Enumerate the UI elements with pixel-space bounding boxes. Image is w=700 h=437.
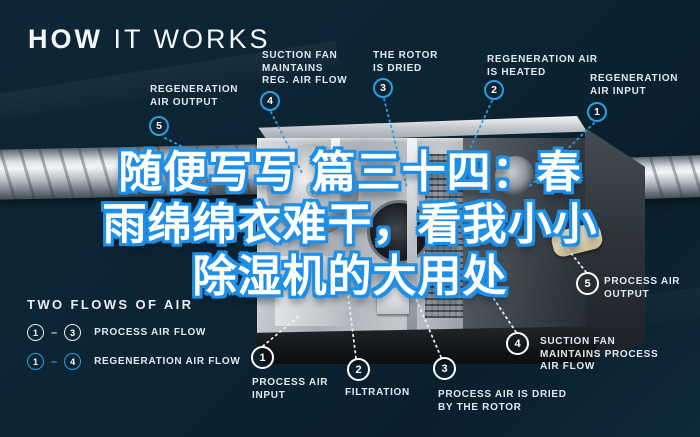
callout-number-3-process: 3 — [433, 357, 456, 380]
callout-number-1-regeneration: 1 — [587, 102, 607, 122]
callout-regeneration-air-output: REGENERATION AIR OUTPUT — [150, 84, 238, 109]
legend-label-regeneration: REGENERATION AIR FLOW — [94, 356, 240, 367]
callout-number-1-process: 1 — [251, 346, 274, 369]
callout-suction-fan-reg: SUCTION FAN MAINTAINS REG. AIR FLOW — [262, 50, 347, 88]
callout-suction-fan-process: SUCTION FAN MAINTAINS PROCESS AIR FLOW — [540, 336, 658, 374]
leader-line-filtration — [348, 295, 356, 358]
legend-circle-1: 1 — [27, 353, 44, 370]
callout-number-3-regeneration: 3 — [373, 78, 393, 98]
title-bold: HOW — [28, 24, 103, 54]
infographic-how-it-works: HOW IT WORKS REGENERATION AIR OUTPUT 5 S… — [0, 0, 700, 437]
page-title: HOW IT WORKS — [28, 24, 271, 55]
callout-regeneration-air-heated: REGENERATION AIR IS HEATED — [487, 54, 598, 79]
legend-circle-3: 3 — [64, 324, 81, 341]
chinese-headline-overlay: 随便写写 篇三十四：春 雨绵绵衣难干，看我小小 除湿机的大用处 — [0, 147, 700, 303]
headline-line-2: 雨绵绵衣难干，看我小小 — [0, 199, 700, 251]
callout-number-2-process: 2 — [347, 358, 370, 381]
callout-filtration: FILTRATION — [345, 387, 410, 400]
legend-label-process: PROCESS AIR FLOW — [94, 327, 206, 338]
callout-number-5-regeneration: 5 — [149, 116, 169, 136]
callout-process-air-dried: PROCESS AIR IS DRIED BY THE ROTOR — [438, 389, 567, 414]
legend-dash: – — [51, 327, 57, 339]
headline-line-3: 除湿机的大用处 — [0, 251, 700, 303]
headline-line-1: 随便写写 篇三十四：春 — [0, 147, 700, 199]
callout-number-4-regeneration: 4 — [260, 91, 280, 111]
legend-circle-4: 4 — [64, 353, 81, 370]
callout-number-4-process: 4 — [506, 332, 529, 355]
callout-process-air-input: PROCESS AIR INPUT — [252, 377, 328, 402]
legend-dash: – — [51, 356, 57, 368]
callout-regeneration-air-input: REGENERATION AIR INPUT — [590, 73, 678, 98]
legend-circle-1: 1 — [27, 324, 44, 341]
legend-row-process: 1 – 3 PROCESS AIR FLOW — [27, 324, 206, 341]
title-light: IT WORKS — [114, 24, 271, 54]
legend-row-regeneration: 1 – 4 REGENERATION AIR FLOW — [27, 353, 241, 370]
callout-number-2-regeneration: 2 — [484, 80, 504, 100]
leader-line-process-input — [263, 317, 298, 346]
callout-rotor-is-dried: THE ROTOR IS DRIED — [373, 50, 438, 75]
